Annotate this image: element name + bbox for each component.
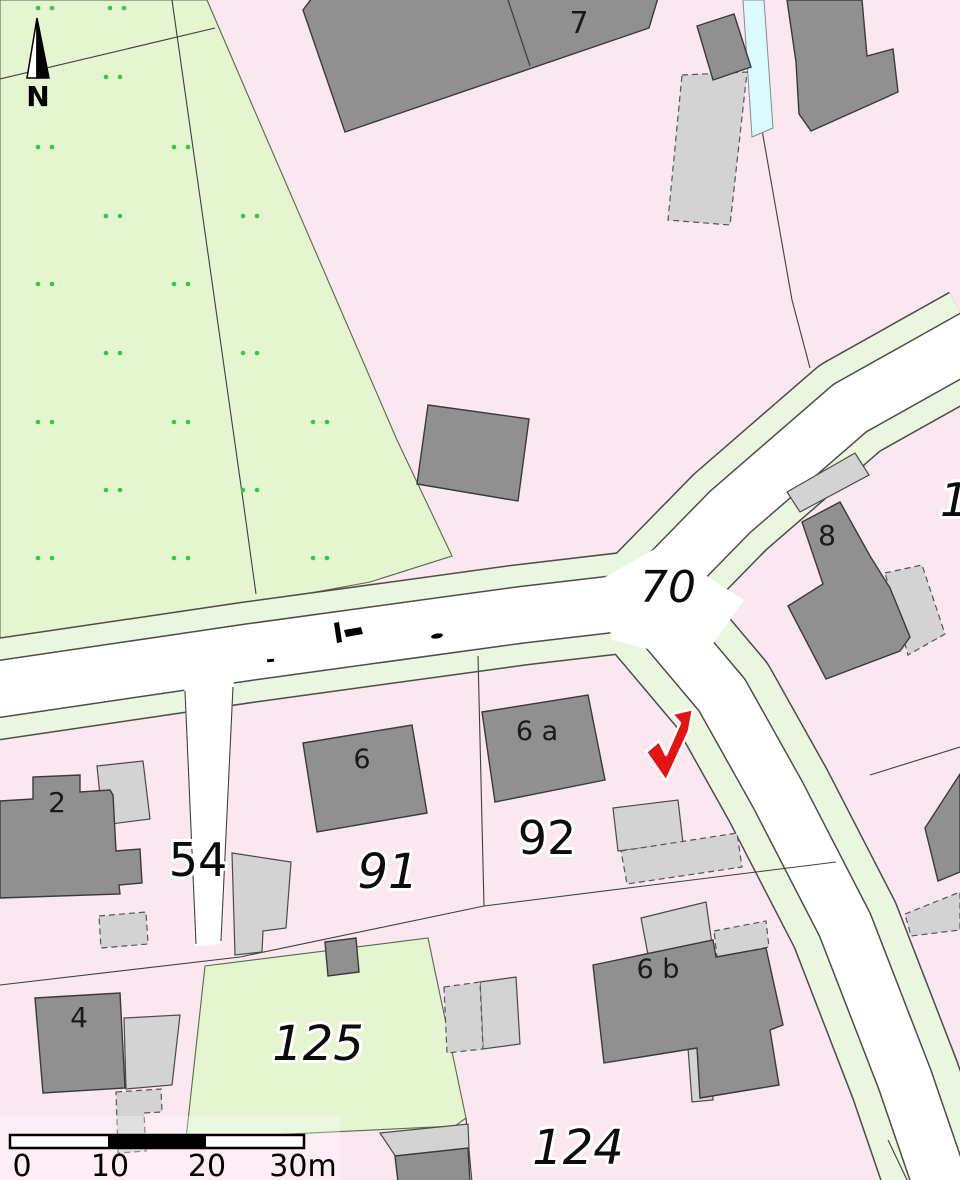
house-label-2: 2	[48, 786, 66, 819]
parcel-label-54: 54	[169, 833, 228, 887]
parcel-label-92: 92	[518, 811, 577, 865]
scale-tick-20: 20	[188, 1149, 226, 1180]
house-label-7: 7	[569, 6, 588, 41]
map-canvas[interactable]: 70 54 91 92 125 124 1 7 2 8 6 6 a 6 b 4 …	[0, 0, 960, 1180]
parcel-label-edge-partial: 1	[940, 473, 960, 527]
house-label-6b: 6 b	[637, 954, 680, 985]
parcel-label-70: 70	[640, 562, 696, 613]
parcel-label-125: 125	[272, 1016, 364, 1072]
parcel-label-124: 124	[532, 1120, 624, 1176]
map-stage: 70 54 91 92 125 124 1 7 2 8 6 6 a 6 b 4 …	[0, 0, 960, 1180]
scale-tick-0: 0	[12, 1149, 31, 1180]
house-label-4: 4	[70, 1001, 88, 1034]
scale-bar: 0 10 20 30m	[0, 1116, 340, 1180]
scale-tick-10: 10	[91, 1149, 129, 1180]
north-arrow-label: N	[26, 80, 49, 113]
house-label-6: 6	[353, 744, 370, 775]
house-label-6a: 6 a	[516, 716, 558, 747]
scale-tick-30m: 30m	[269, 1149, 336, 1180]
house-label-8: 8	[818, 519, 836, 552]
parcel-label-91: 91	[357, 844, 418, 900]
